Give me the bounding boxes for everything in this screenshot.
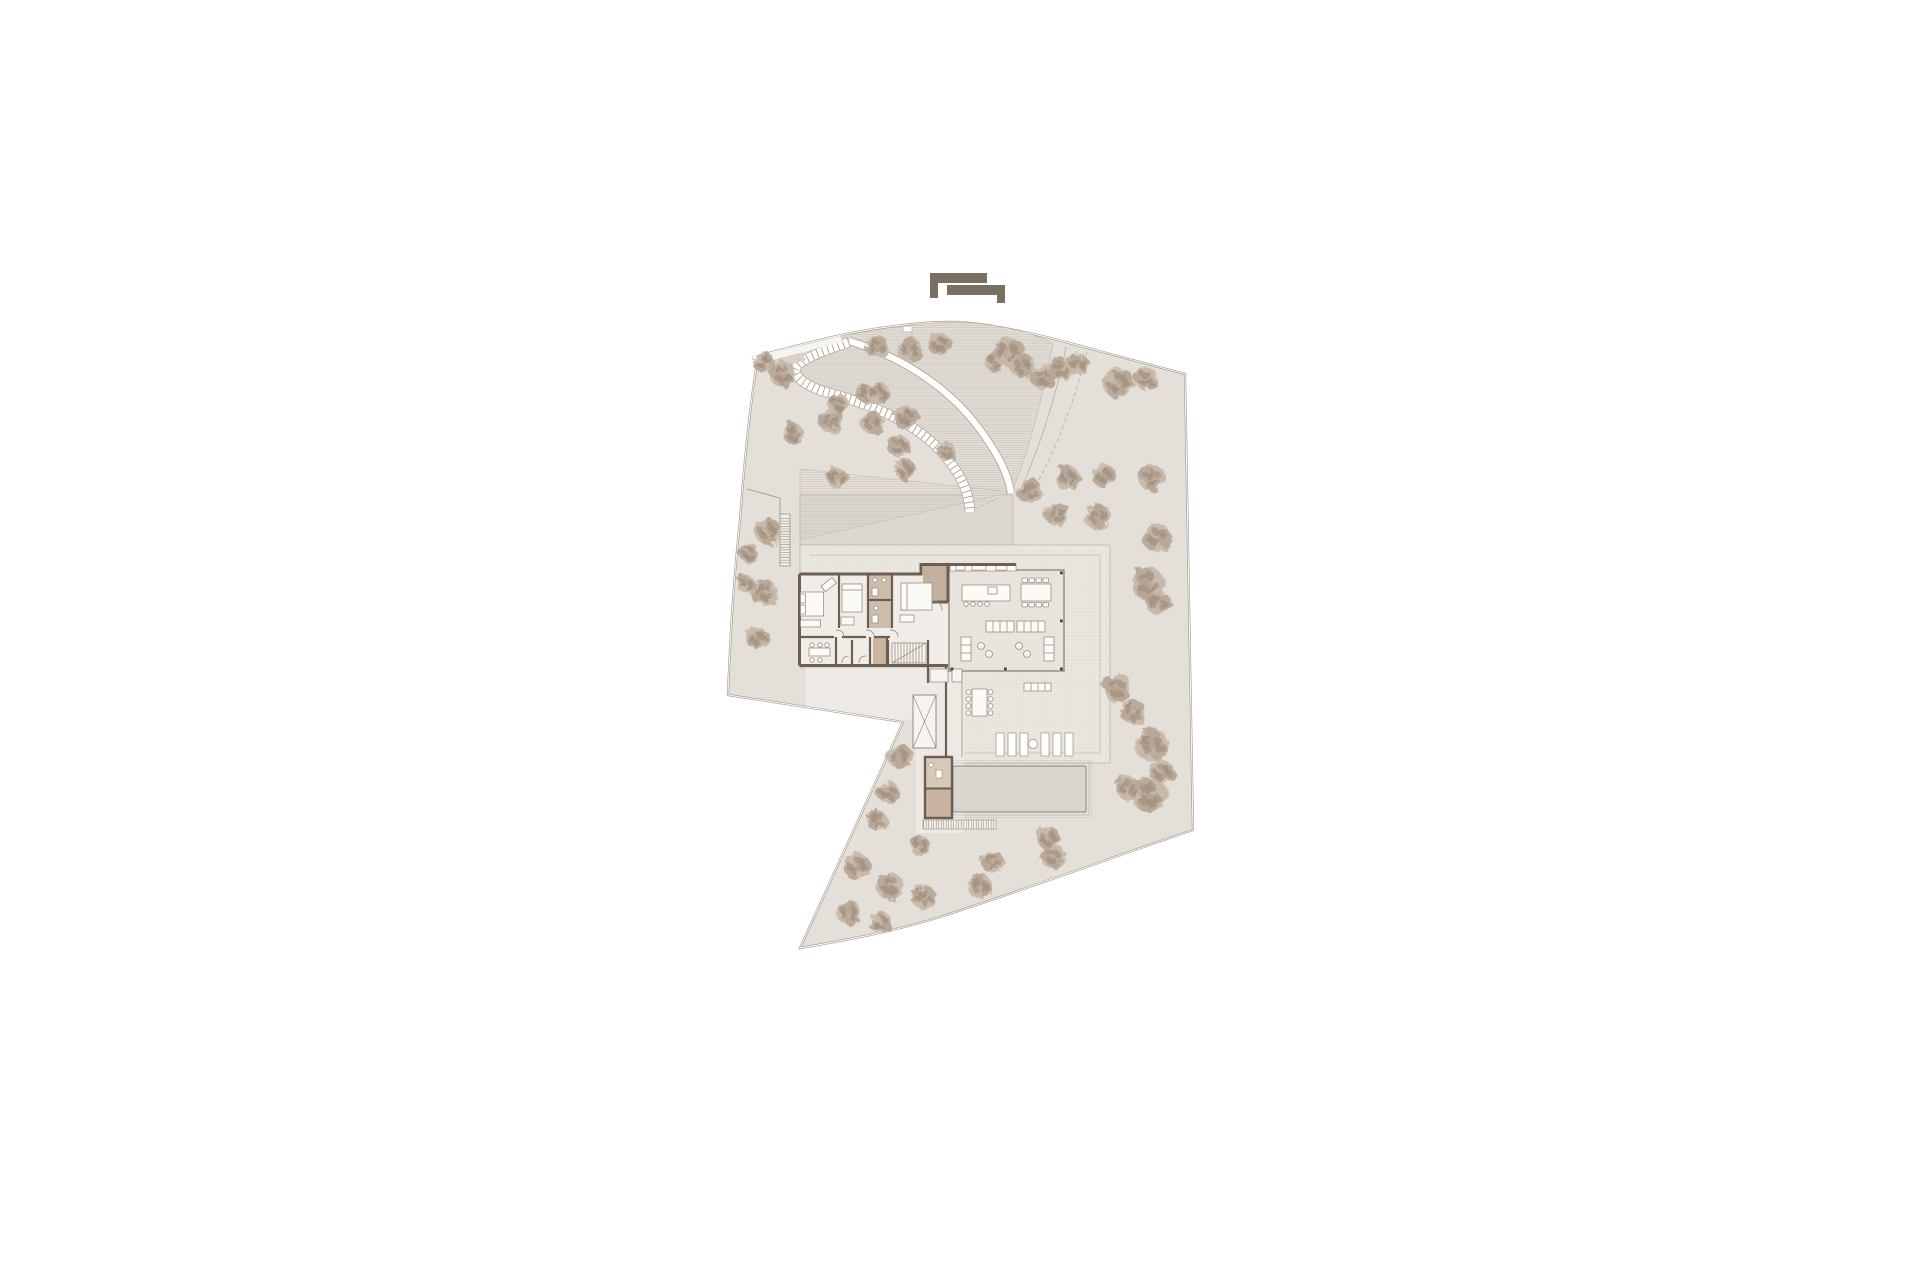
dining-table — [1021, 578, 1051, 607]
gate-post — [903, 326, 912, 332]
sun-lounger — [996, 733, 1004, 756]
utility-boxes — [930, 669, 962, 682]
step-grate — [923, 820, 996, 829]
site-plan-drawing — [0, 0, 1920, 1280]
logo-mark — [930, 273, 1005, 303]
lounger-side-table — [1029, 740, 1038, 749]
stair-core — [892, 643, 926, 663]
wardrobe-floor — [873, 638, 886, 664]
lower-wing-rooms — [925, 757, 952, 818]
sun-lounger — [1008, 733, 1016, 756]
skylight-shaft — [913, 695, 936, 748]
pool — [948, 761, 1092, 818]
sun-lounger — [1020, 733, 1028, 756]
outdoor-bench — [1024, 683, 1051, 691]
site-plan-svg — [0, 0, 1920, 1280]
bed-double — [801, 592, 824, 627]
sun-lounger — [1053, 733, 1061, 756]
sun-lounger — [1065, 733, 1073, 756]
sun-lounger — [1041, 733, 1049, 756]
logo-lower-bar — [947, 285, 1005, 303]
